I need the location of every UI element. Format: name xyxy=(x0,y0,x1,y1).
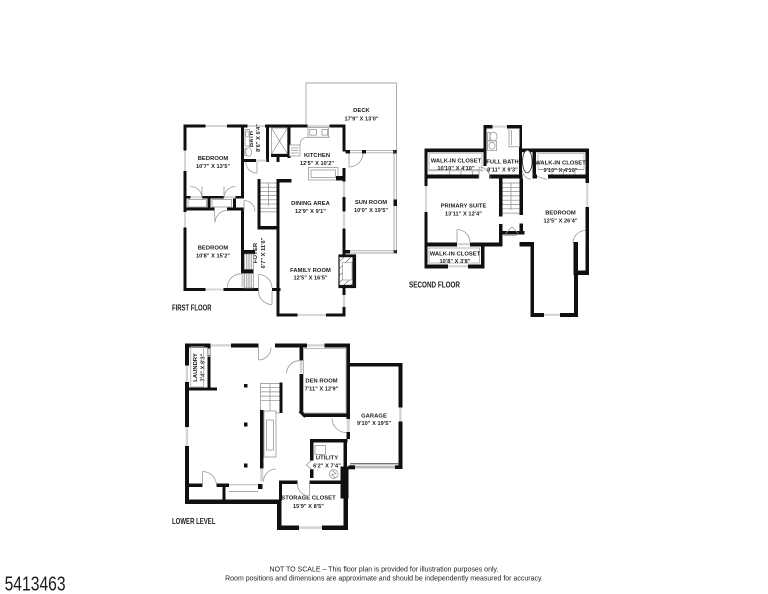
svg-text:KITCHEN: KITCHEN xyxy=(304,153,330,159)
svg-text:10'8" X 15'2": 10'8" X 15'2" xyxy=(196,254,230,260)
svg-text:BEDROOM: BEDROOM xyxy=(545,211,576,217)
svg-text:17'9" X 13'0": 17'9" X 13'0" xyxy=(344,117,378,123)
svg-text:FULL BATH: FULL BATH xyxy=(486,160,518,166)
svg-text:7'11" X 12'9": 7'11" X 12'9" xyxy=(305,387,339,393)
svg-text:LOWER LEVEL: LOWER LEVEL xyxy=(172,517,216,526)
svg-text:DEN ROOM: DEN ROOM xyxy=(305,379,337,385)
svg-text:15'9" X 8'5": 15'9" X 8'5" xyxy=(293,504,324,510)
svg-text:UTILITY: UTILITY xyxy=(316,456,338,462)
svg-text:LAUNDRY: LAUNDRY xyxy=(193,353,199,382)
svg-text:STORAGE CLOSET: STORAGE CLOSET xyxy=(281,496,336,502)
svg-text:SECOND FLOOR: SECOND FLOOR xyxy=(409,281,460,290)
svg-text:6'7" X 11'6": 6'7" X 11'6" xyxy=(261,237,267,268)
svg-text:12'5" X 26'4": 12'5" X 26'4" xyxy=(543,219,577,225)
svg-text:9'10" X 4'10": 9'10" X 4'10" xyxy=(543,168,577,174)
svg-text:6'2" X 7'4": 6'2" X 7'4" xyxy=(313,464,341,470)
svg-text:NOT TO SCALE – This floor plan: NOT TO SCALE – This floor plan is provid… xyxy=(270,567,499,574)
svg-text:10'0" X 19'5": 10'0" X 19'5" xyxy=(354,208,388,214)
svg-text:9'10" X 19'5": 9'10" X 19'5" xyxy=(357,421,391,427)
svg-text:FAMILY ROOM: FAMILY ROOM xyxy=(290,268,331,274)
svg-text:WALK-IN CLOSET: WALK-IN CLOSET xyxy=(535,161,586,167)
svg-text:BEDROOM: BEDROOM xyxy=(198,156,229,162)
svg-text:8'11" X 9'3": 8'11" X 9'3" xyxy=(487,168,518,174)
svg-text:DINING AREA: DINING AREA xyxy=(291,201,330,207)
svg-text:10'7" X 13'5": 10'7" X 13'5" xyxy=(196,164,230,170)
svg-text:SUN ROOM: SUN ROOM xyxy=(355,200,387,206)
svg-text:GARAGE: GARAGE xyxy=(361,414,387,420)
svg-text:WALK-IN CLOSET: WALK-IN CLOSET xyxy=(430,252,481,258)
svg-text:13'11" X 12'4": 13'11" X 12'4" xyxy=(445,212,482,218)
svg-text:PRIMARY SUITE: PRIMARY SUITE xyxy=(441,204,487,210)
svg-text:12'5" X 16'5": 12'5" X 16'5" xyxy=(293,276,327,282)
svg-text:5413463: 5413463 xyxy=(5,573,66,594)
svg-text:WALK-IN CLOSET: WALK-IN CLOSET xyxy=(431,159,482,165)
svg-text:BEDROOM: BEDROOM xyxy=(198,246,229,252)
svg-text:Room positions and dimensions: Room positions and dimensions are approx… xyxy=(225,576,543,583)
svg-text:FIRST FLOOR: FIRST FLOOR xyxy=(172,304,212,313)
svg-text:DECK: DECK xyxy=(353,108,370,114)
svg-text:10'8" X 3'8": 10'8" X 3'8" xyxy=(440,259,471,265)
svg-text:8'6" X 6'4": 8'6" X 6'4" xyxy=(256,124,262,152)
svg-text:12'9" X 9'1": 12'9" X 9'1" xyxy=(295,209,326,215)
svg-text:12'5" X 10'2": 12'5" X 10'2" xyxy=(300,161,334,167)
